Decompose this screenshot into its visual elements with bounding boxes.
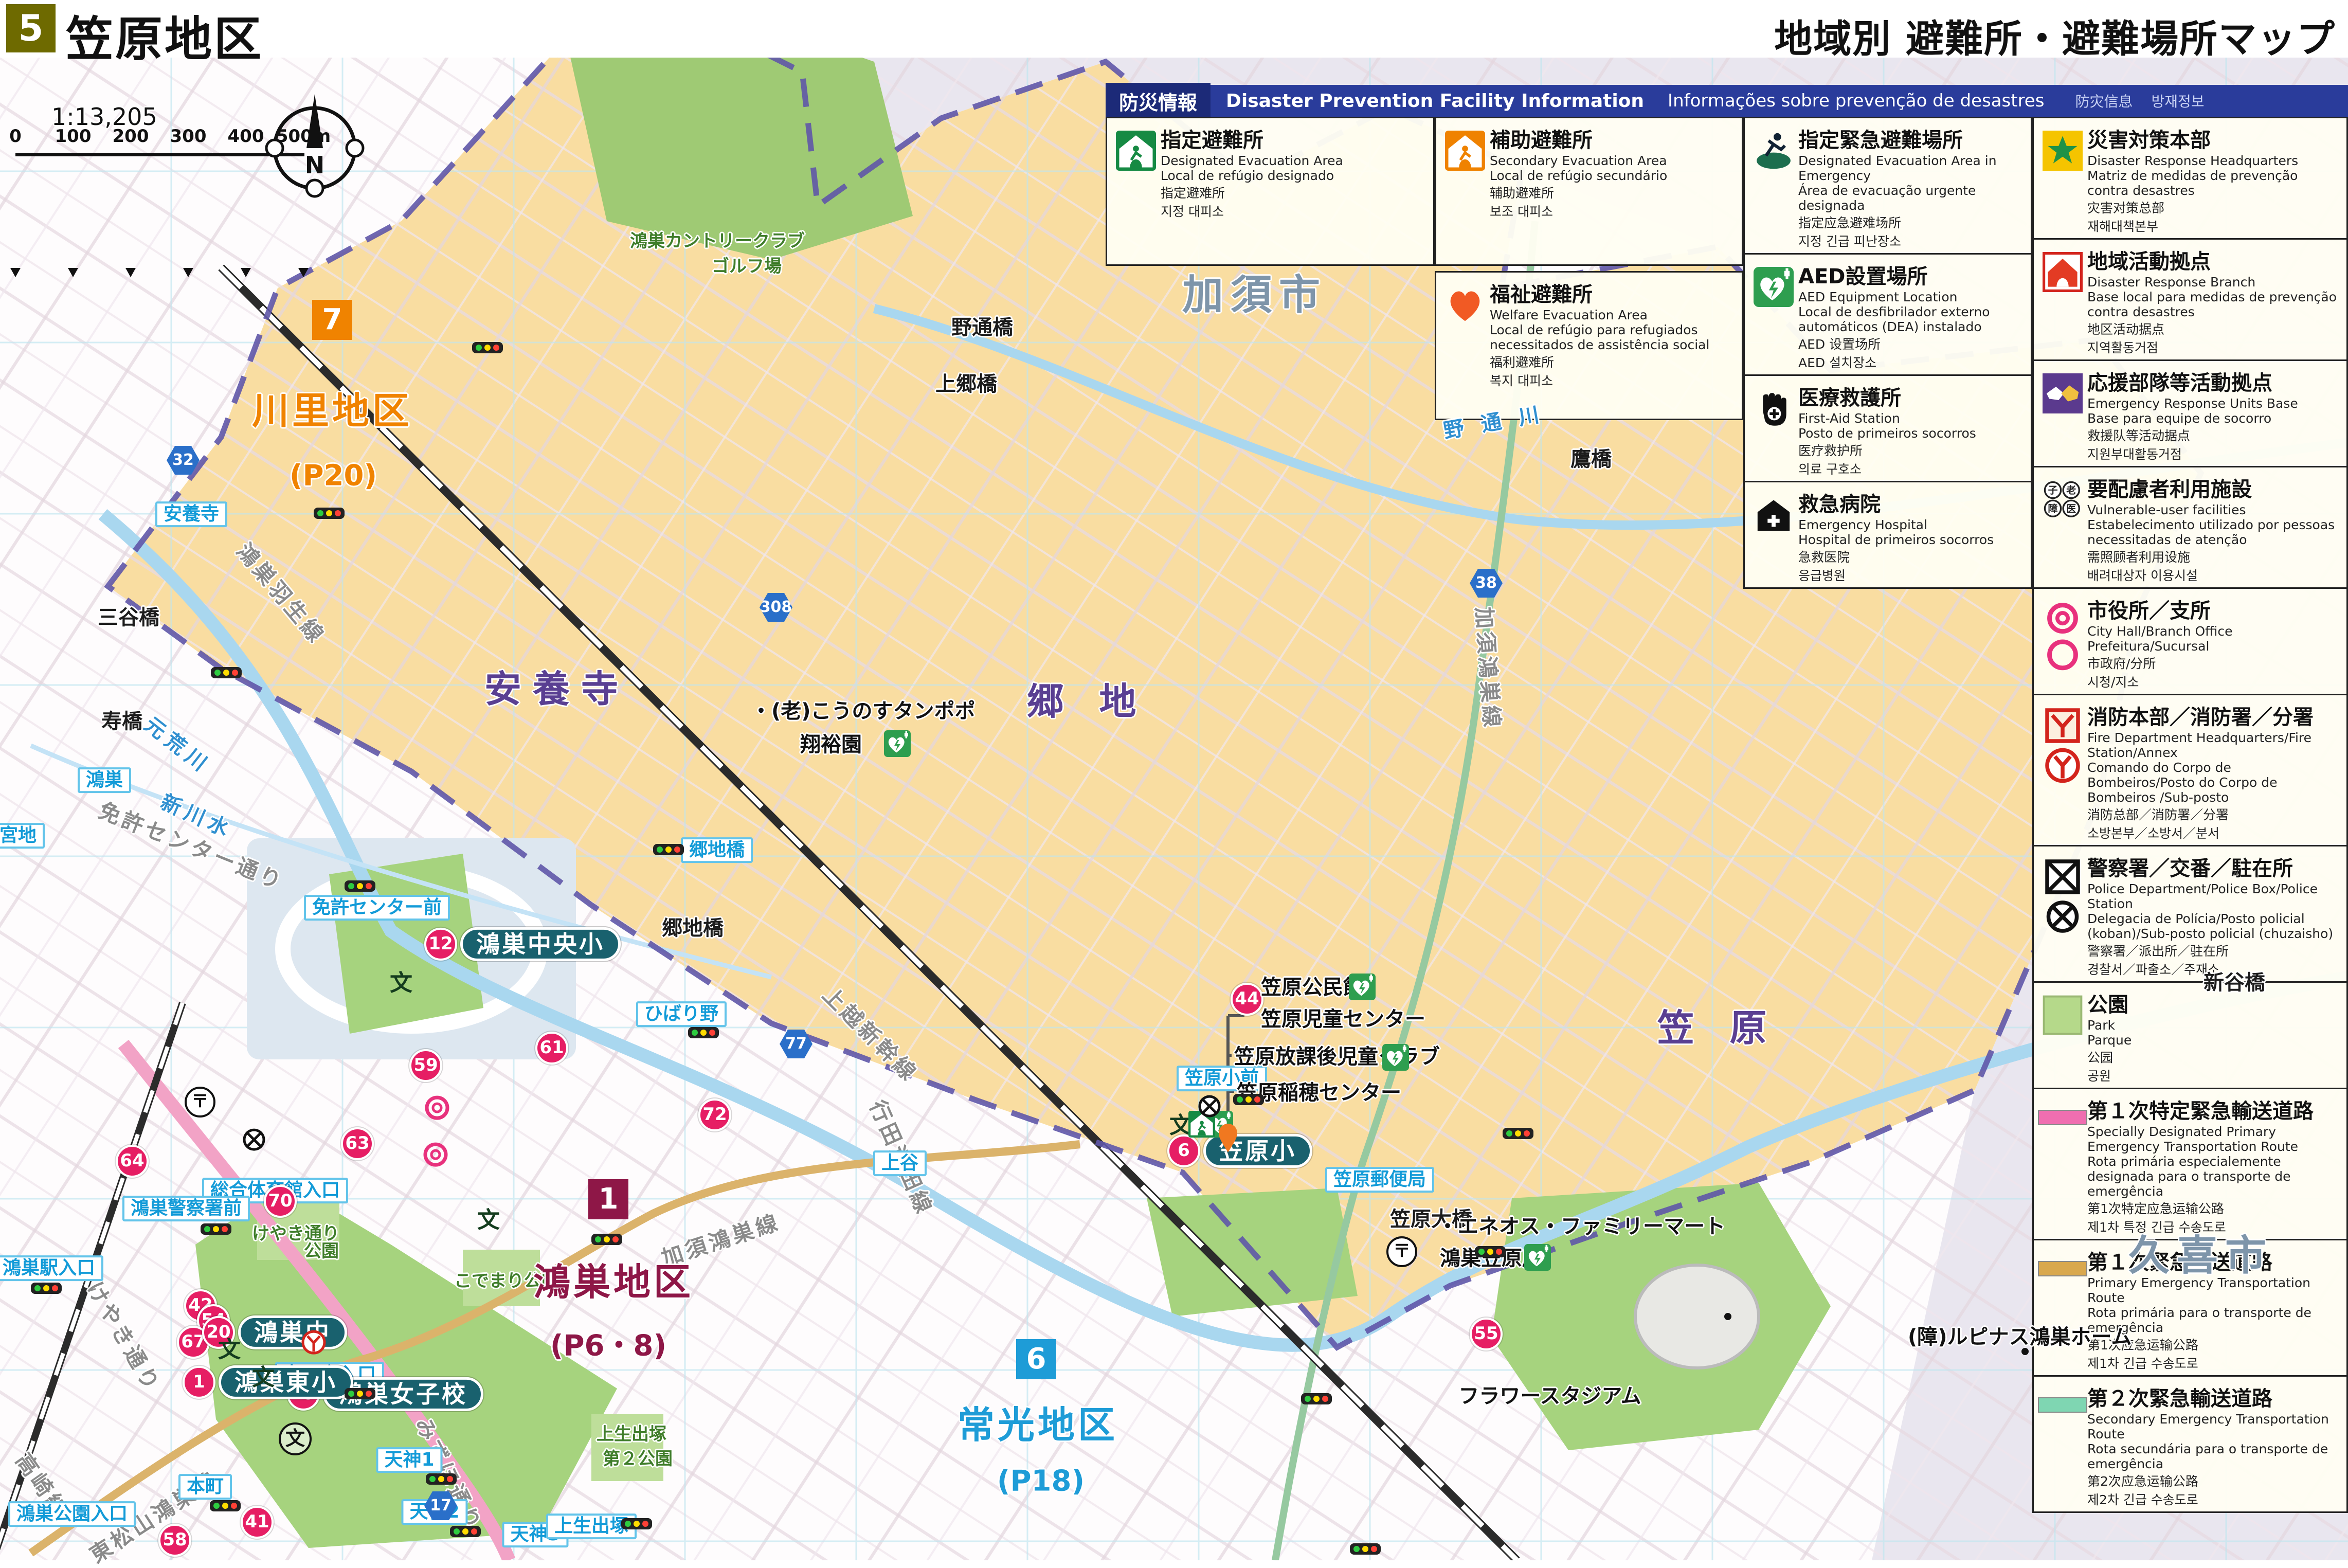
- callout-line: 笠原児童センター: [1261, 1008, 1425, 1030]
- legend-row: 救急病院Emergency HospitalHospital de primei…: [1745, 482, 2031, 587]
- scale-tick: 0: [9, 126, 22, 147]
- traffic-signal-icon: [201, 1223, 231, 1235]
- bridge-label: 三谷橋: [98, 607, 159, 628]
- legend-line: 市役所／支所: [2087, 594, 2342, 624]
- legend-line: 消防本部／消防署／分署: [2087, 700, 2342, 730]
- hand-icon: [1749, 381, 1798, 428]
- route-swatch: [2038, 1382, 2087, 1413]
- legend-line: 福祉避難所: [1490, 278, 1738, 308]
- bus-stop-label: 郷地橋: [681, 837, 753, 863]
- legend-row: 指定緊急避難場所Designated Evacuation Area in Em…: [1745, 118, 2031, 255]
- bridge-label: 寿橋: [101, 711, 142, 732]
- legend-header: 防災情報 Disaster Prevention Facility Inform…: [1106, 85, 2348, 117]
- park-label: 上生出塚: [597, 1426, 666, 1444]
- police-box-icon: [1198, 1094, 1221, 1120]
- callout-line: 笠原公民館: [1261, 977, 1364, 998]
- legend-line: Disaster Response Headquarters: [2087, 153, 2342, 168]
- numbered-point: 55: [1470, 1318, 1503, 1350]
- legend-line: 応援部隊等活動拠点: [2087, 366, 2342, 396]
- scale-tick-mark: [183, 268, 193, 277]
- shake-icon: [2038, 366, 2087, 413]
- legend-line: 指定避難所: [1161, 123, 1429, 153]
- scale-tick: 300: [170, 126, 207, 147]
- legend-line: Welfare Evacuation Area: [1490, 308, 1738, 322]
- bus-stop-label: 鴻巣警察署前: [122, 1196, 250, 1221]
- legend-header-jp: 防災情報: [1106, 83, 1211, 119]
- map-pin-icon: [1218, 1124, 1238, 1155]
- legend-line: Área de evacuação urgente designada: [1798, 183, 2027, 213]
- legend-line: Designated Evacuation Area: [1161, 153, 1429, 168]
- traffic-signal-icon: [210, 1500, 241, 1511]
- police-icon: [2038, 852, 2087, 936]
- legend-line: Parque: [2087, 1033, 2342, 1048]
- school-mon-symbol: 文: [477, 1209, 500, 1232]
- legend-row: 市役所／支所City Hall/Branch OfficePrefeitura/…: [2034, 589, 2346, 695]
- legend-row-text: 警察署／交番／駐在所Police Department/Police Box/P…: [2087, 852, 2342, 978]
- legend-line: Matriz de medidas de prevenção contra de…: [2087, 168, 2342, 198]
- legend-row: 補助避難所Secondary Evacuation AreaLocal de r…: [1436, 118, 1742, 264]
- traffic-signal-icon: [1233, 1094, 1264, 1105]
- district-link-page: (P6・8): [550, 1331, 666, 1362]
- legend-line: Park: [2087, 1018, 2342, 1033]
- legend-line: AED 설치장소: [1798, 353, 2027, 371]
- page-title: 笠原地区: [66, 1, 263, 69]
- district-link-page: (P18): [997, 1467, 1085, 1497]
- legend-row: 医療救護所First-Aid StationPosto de primeiros…: [1745, 376, 2031, 482]
- legend-line: Local de refúgio para refugiados necessi…: [1490, 322, 1738, 352]
- legend-row-text: 医療救護所First-Aid StationPosto de primeiros…: [1798, 381, 2027, 478]
- legend-line: Local de refúgio designado: [1161, 168, 1429, 183]
- traffic-signal-icon: [1503, 1128, 1533, 1139]
- legend-line: 공원: [2087, 1066, 2342, 1085]
- callout-line: 笠原放課後児童クラブ: [1234, 1046, 1440, 1068]
- bus-stop-label: 宮地: [0, 823, 45, 849]
- bus-stop-label: ひばり野: [636, 1001, 727, 1027]
- park-label: 鴻巣カントリークラブ: [630, 232, 805, 251]
- route-swatch: [2038, 1246, 2087, 1276]
- city-hall-icon: [424, 1094, 450, 1123]
- city-label: 久喜市: [2128, 1234, 2273, 1277]
- area-label: 郷 地: [1026, 682, 1147, 722]
- legend-row-text: 市役所／支所City Hall/Branch OfficePrefeitura/…: [2087, 594, 2342, 691]
- evac-g-icon: [1111, 123, 1161, 171]
- page-number-badge: 5: [6, 4, 56, 52]
- legend-row: 地域活動拠点Disaster Response BranchBase local…: [2034, 240, 2346, 361]
- bridge-label: 鷹橋: [1570, 448, 1612, 470]
- map-stage: 子老障医 5 笠原地区 地域別 避難所・避難場所マップ 1:13,205 010…: [0, 0, 2348, 1560]
- traffic-signal-icon: [345, 1388, 375, 1399]
- legend-row: 消防本部／消防署／分署Fire Department Headquarters/…: [2034, 695, 2346, 846]
- police-box-icon: [242, 1128, 266, 1154]
- traffic-signal-icon: [591, 1234, 622, 1245]
- legend-line: 시청/지소: [2087, 672, 2342, 691]
- legend-line: Hospital de primeiros socorros: [1798, 532, 2027, 547]
- scale-tick-mark: [298, 268, 309, 277]
- bus-stop-label: 上谷: [873, 1150, 927, 1176]
- bridge-label: 郷地橋: [662, 917, 724, 939]
- aed-icon: [1524, 1244, 1551, 1273]
- traffic-signal-icon: [345, 880, 375, 892]
- scale-tick-mark: [241, 268, 251, 277]
- post-office-icon: 〒: [185, 1087, 215, 1118]
- legend-line: 灾害对策总部: [2087, 198, 2342, 217]
- legend-row: 警察署／交番／駐在所Police Department/Police Box/P…: [2034, 846, 2346, 983]
- bus-stop-label: 笠原郵便局: [1325, 1167, 1434, 1193]
- legend-row: 第２次緊急輸送道路Secondary Emergency Transportat…: [2034, 1377, 2346, 1511]
- legend-row-text: 第１次特定緊急輸送道路Specially Designated Primary …: [2087, 1094, 2342, 1236]
- scale-tick-mark: [125, 268, 136, 277]
- legend-row: 福祉避難所Welfare Evacuation AreaLocal de ref…: [1436, 273, 1742, 419]
- area-label: 安養寺: [484, 670, 629, 709]
- area-label: 笠 原: [1657, 1009, 1778, 1048]
- legend-row: AED設置場所AED Equipment LocationLocal de de…: [1745, 255, 2031, 376]
- map-title: 地域別 避難所・避難場所マップ: [1774, 8, 2336, 63]
- legend-line: 地区活动据点: [2087, 319, 2342, 338]
- legend-header-ko: 방재정보: [2151, 91, 2204, 111]
- school-name-pill: 鴻巣中央小: [460, 927, 621, 961]
- legend-line: Disaster Response Branch: [2087, 275, 2342, 290]
- traffic-signal-icon: [426, 1473, 457, 1485]
- compass: N: [252, 85, 386, 219]
- legend-line: 需照顾者利用设施: [2087, 547, 2342, 566]
- district-link-name: 鴻巣地区: [533, 1263, 694, 1302]
- legend-line: 의료 구호소: [1798, 459, 2027, 478]
- legend-line: 指定避难所: [1161, 183, 1429, 202]
- hosp-icon: [1749, 488, 1798, 535]
- legend-line: Estabelecimento utilizado por pessoas ne…: [2087, 517, 2342, 547]
- bus-stop-label: 鴻巣: [78, 767, 131, 793]
- legend-line: 제1차 긴급 수송도로: [2087, 1354, 2342, 1372]
- legend-line: Rota primária especialemente designada p…: [2087, 1154, 2342, 1199]
- legend-line: 辅助避难所: [1490, 183, 1738, 202]
- legend-header-pt: Informações sobre prevenção de desastres: [1668, 91, 2044, 111]
- legend-row-text: 地域活動拠点Disaster Response BranchBase local…: [2087, 245, 2342, 356]
- legend-row-text: 応援部隊等活動拠点Emergency Response Units BaseBa…: [2087, 366, 2342, 463]
- school-number: 1: [183, 1366, 215, 1399]
- legend-line: Emergency Response Units Base: [2087, 396, 2342, 411]
- district-link-number: 1: [588, 1179, 628, 1219]
- legend-line: 지원부대활동거점: [2087, 444, 2342, 463]
- park-label: 公園: [304, 1242, 339, 1261]
- legend-line: Emergency Hospital: [1798, 517, 2027, 532]
- traffic-signal-icon: [314, 508, 345, 519]
- legend-line: 응급병원: [1798, 566, 2027, 584]
- bus-stop-label: 免許センター前: [304, 895, 450, 921]
- legend-row-text: 消防本部／消防署／分署Fire Department Headquarters/…: [2087, 700, 2342, 842]
- poi-label: ・(老)こうのすタンポポ: [751, 700, 976, 722]
- run-icon: [1749, 123, 1798, 171]
- traffic-signal-icon: [1301, 1393, 1332, 1404]
- legend-row-text: 指定避難所Designated Evacuation AreaLocal de …: [1161, 123, 1429, 220]
- scale-tick-mark: [10, 268, 21, 277]
- traffic-signal-icon: [653, 844, 684, 855]
- legend-line: Secondary Emergency Transportation Route: [2087, 1412, 2342, 1441]
- legend-line: 배려대상자 이용시설: [2087, 566, 2342, 584]
- legend-line: Posto de primeiros socorros: [1798, 426, 2027, 441]
- bus-stop-label: 鴻巣公園入口: [8, 1501, 136, 1527]
- bus-stop-label: 天神1: [376, 1447, 442, 1473]
- poi-label: ・エネオス・ファミリーマート: [1437, 1216, 1725, 1237]
- legend-line: AED設置場所: [1798, 260, 2027, 290]
- legend-line: 要配慮者利用施設: [2087, 473, 2342, 502]
- poi-label: (障)ルピナス鴻巣ホーム: [1908, 1326, 2132, 1348]
- post-office-icon: 〒: [1386, 1236, 1417, 1267]
- legend-line: 警察署／派出所／驻在所: [2087, 941, 2342, 960]
- legend-line: Fire Department Headquarters/Fire Statio…: [2087, 730, 2342, 760]
- legend-line: City Hall/Branch Office: [2087, 624, 2342, 639]
- legend-row-text: 指定緊急避難場所Designated Evacuation Area in Em…: [1798, 123, 2027, 250]
- numbered-point: 58: [158, 1524, 191, 1557]
- legend-line: 補助避難所: [1490, 123, 1738, 153]
- traffic-signal-icon: [1475, 1246, 1506, 1257]
- legend-line: 警察署／交番／駐在所: [2087, 852, 2342, 881]
- district-link-number: 6: [1016, 1339, 1056, 1379]
- scale-tick: 200: [113, 126, 149, 147]
- bus-stop-label: 本町: [178, 1474, 232, 1500]
- fire-icon: [2038, 700, 2087, 785]
- legend-line: AED Equipment Location: [1798, 290, 2027, 304]
- evac-o-icon: [1440, 123, 1490, 171]
- park-icon: [2038, 988, 2087, 1035]
- legend-line: Base local para medidas de prevenção con…: [2087, 290, 2342, 319]
- legend-row-text: 補助避難所Secondary Evacuation AreaLocal de r…: [1490, 123, 1738, 220]
- legend-line: 公园: [2087, 1048, 2342, 1066]
- legend-row-text: 第２次緊急輸送道路Secondary Emergency Transportat…: [2087, 1382, 2342, 1508]
- aed-icon: [1382, 1044, 1409, 1073]
- legend-row: 要配慮者利用施設Vulnerable-user facilitiesEstabe…: [2034, 467, 2346, 589]
- legend-line: 医療救護所: [1798, 381, 2027, 411]
- vuln-icon: [2038, 473, 2087, 520]
- legend-line: Base para equipe de socorro: [2087, 411, 2342, 426]
- poi-label: フラワースタジアム: [1458, 1385, 1641, 1407]
- fire-station-icon: [300, 1329, 327, 1358]
- legend-line: First-Aid Station: [1798, 411, 2027, 426]
- traffic-signal-icon: [31, 1283, 62, 1294]
- legend-line: 指定緊急避難場所: [1798, 123, 2027, 153]
- scale-tick-mark: [68, 268, 78, 277]
- school-mon-symbol: 文: [390, 971, 412, 995]
- bridge-label: 野通橋: [951, 317, 1013, 338]
- legend-row: 応援部隊等活動拠点Emergency Response Units BaseBa…: [2034, 361, 2346, 467]
- legend-line: Prefeitura/Sucursal: [2087, 639, 2342, 654]
- district-link-number: 7: [312, 300, 352, 340]
- legend-row: 災害対策本部Disaster Response HeadquartersMatr…: [2034, 118, 2346, 240]
- legend-line: Secondary Evacuation Area: [1490, 153, 1738, 168]
- legend-row-text: AED設置場所AED Equipment LocationLocal de de…: [1798, 260, 2027, 371]
- district-link-page: (P20): [290, 461, 377, 492]
- park-label: 第２公園: [603, 1450, 673, 1469]
- legend-line: Police Department/Police Box/Police Stat…: [2087, 881, 2342, 911]
- legend-line: Vulnerable-user facilities: [2087, 502, 2342, 517]
- school-mon-symbol: 文: [218, 1338, 241, 1362]
- legend-row-text: 要配慮者利用施設Vulnerable-user facilitiesEstabe…: [2087, 473, 2342, 584]
- traffic-signal-icon: [211, 667, 242, 678]
- bridge-label: 上郷橋: [935, 373, 997, 395]
- traffic-signal-icon: [1350, 1543, 1381, 1555]
- school-number: 12: [424, 928, 457, 961]
- traffic-signal-icon: [688, 1027, 719, 1038]
- legend-header-zh: 防灾信息: [2075, 91, 2133, 111]
- legend-line: Local de refúgio secundário: [1490, 168, 1738, 183]
- traffic-signal-icon: [450, 1526, 481, 1537]
- legend-row-text: 救急病院Emergency HospitalHospital de primei…: [1798, 488, 2027, 584]
- aed-icon: [884, 730, 911, 759]
- legend-row: 第１次特定緊急輸送道路Specially Designated Primary …: [2034, 1089, 2346, 1240]
- legend-line: 市政府/分所: [2087, 654, 2342, 672]
- legend-line: 急救医院: [1798, 547, 2027, 566]
- numbered-point: 61: [535, 1032, 568, 1065]
- route-swatch: [2038, 1094, 2087, 1125]
- numbered-point: 44: [1231, 983, 1263, 1016]
- numbered-point: 41: [241, 1506, 274, 1539]
- school-name-pill: 鴻巣中: [238, 1315, 347, 1349]
- legend-row-text: 公園ParkParque公园공원: [2087, 988, 2342, 1085]
- numbered-point: 59: [409, 1049, 442, 1082]
- legend-line: 보조 대피소: [1490, 202, 1738, 220]
- legend-row: 指定避難所Designated Evacuation AreaLocal de …: [1107, 118, 1433, 264]
- legend-line: Local de desfibrilador externo automátic…: [1798, 304, 2027, 334]
- aed-icon: [1749, 260, 1798, 307]
- bus-stop-label: 鴻巣駅入口: [0, 1255, 103, 1281]
- bridge-label: 新谷橋: [2203, 972, 2265, 994]
- legend-header-en: Disaster Prevention Facility Information: [1226, 91, 1644, 112]
- legend-line: 복지 대피소: [1490, 371, 1738, 389]
- legend-line: Delegacia de Polícia/Posto policial (kob…: [2087, 911, 2342, 941]
- heart-icon: [1440, 278, 1490, 325]
- legend-line: 소방본부／소방서／분서: [2087, 823, 2342, 842]
- legend-row-text: 福祉避難所Welfare Evacuation AreaLocal de ref…: [1490, 278, 1738, 389]
- numbered-point: 72: [698, 1098, 731, 1131]
- legend-line: 재해대책본부: [2087, 217, 2342, 235]
- aed-icon: [1349, 974, 1376, 1002]
- legend-line: 災害対策本部: [2087, 123, 2342, 153]
- school-mon-symbol: 文: [252, 1366, 275, 1390]
- traffic-signal-icon: [621, 1518, 652, 1529]
- legend-line: AED 设置场所: [1798, 334, 2027, 353]
- legend-line: 지역활동거점: [2087, 338, 2342, 356]
- legend-line: 第2次应急运输公路: [2087, 1471, 2342, 1490]
- district-link-name: 川里地区: [252, 392, 412, 431]
- legend-line: 救援队等活动据点: [2087, 426, 2342, 444]
- legend-line: Comando do Corpo de Bombeiros/Posto do C…: [2087, 760, 2342, 805]
- star-icon: [2038, 123, 2087, 171]
- district-link-name: 常光地区: [958, 1406, 1118, 1445]
- scale-tick: 100: [55, 126, 92, 147]
- legend-line: 지정 대피소: [1161, 202, 1429, 220]
- numbered-point: 70: [264, 1185, 297, 1218]
- legend-line: 第２次緊急輸送道路: [2087, 1382, 2342, 1412]
- legend-line: 指定应急避难场所: [1798, 213, 2027, 231]
- traffic-signal-icon: [472, 342, 503, 353]
- legend-line: Designated Evacuation Area in Emergency: [1798, 153, 2027, 183]
- school-name-pill: 鴻巣東小: [219, 1365, 353, 1399]
- city-hall-icon: [422, 1141, 449, 1170]
- legend-line: 第１次特定緊急輸送道路: [2087, 1094, 2342, 1124]
- legend-line: 第1次特定应急运输公路: [2087, 1199, 2342, 1217]
- legend-line: 消防总部／消防署／分署: [2087, 805, 2342, 823]
- park-label: ゴルフ場: [712, 258, 782, 276]
- school-label: 12鴻巣中央小: [424, 927, 621, 961]
- legend-line: Primary Emergency Transportation Route: [2087, 1275, 2342, 1305]
- legend-row-text: 災害対策本部Disaster Response HeadquartersMatr…: [2087, 123, 2342, 235]
- legend-line: Rota secundária para o transporte de eme…: [2087, 1441, 2342, 1471]
- legend-line: 제2차 긴급 수송도로: [2087, 1490, 2342, 1508]
- legend-line: 지정 긴급 피난장소: [1798, 231, 2027, 250]
- legend-line: 救急病院: [1798, 488, 2027, 517]
- cityhall-icon: [2038, 594, 2087, 673]
- bus-stop-label: 安養寺: [155, 501, 227, 527]
- housered-icon: [2038, 245, 2087, 292]
- city-label: 加須市: [1182, 274, 1327, 317]
- school-mon-circle-symbol: 文: [279, 1422, 312, 1455]
- legend-line: 福利避难所: [1490, 352, 1738, 371]
- numbered-point: 64: [116, 1145, 149, 1178]
- numbered-point: 63: [341, 1127, 374, 1160]
- legend-line: 地域活動拠点: [2087, 245, 2342, 275]
- legend-row: 公園ParkParque公园공원: [2034, 983, 2346, 1089]
- legend-line: Specially Designated Primary Emergency T…: [2087, 1124, 2342, 1154]
- svg-text:N: N: [305, 151, 325, 179]
- poi-label: 翔裕園: [800, 734, 862, 755]
- legend-line: 医疗救护所: [1798, 441, 2027, 459]
